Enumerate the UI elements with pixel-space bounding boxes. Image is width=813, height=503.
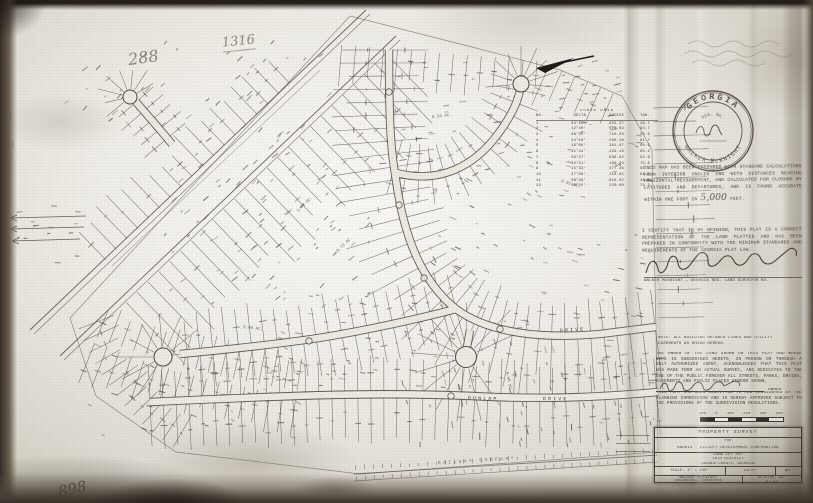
area-label: 0.54 AC. <box>432 114 452 120</box>
seal-signature <box>696 125 722 136</box>
curve-data-table: CURVE DATA NO.DELTARADIUSTAN. 103°12'955… <box>536 108 658 190</box>
area-label: 1.03 AC. <box>297 197 314 214</box>
note-block: NOTE: ALL BUILDING SETBACK LINES AND UTI… <box>658 336 786 347</box>
scan-shadow-bottom-right <box>673 408 813 503</box>
certification-statement: I CERTIFY THAT IN MY OPINION, THIS PLAT … <box>642 227 802 255</box>
ink-wedge-mark <box>536 56 594 73</box>
pencil-note-squiggles <box>684 41 792 66</box>
surveyor-seal: GEORGIA WALKER McKNIGHT REG. No. <box>673 91 753 171</box>
area-label: 0.72 AC. <box>337 237 354 254</box>
approval-statement: THIS PLAT HAS BEEN SUBMITTED TO AND CONS… <box>656 391 802 408</box>
tie-line-arrows <box>10 215 86 244</box>
street-label-drive-south: DRIVE <box>543 396 568 402</box>
accuracy-statement: THIS MAP HAS BEEN PREPARED WITH STANDARD… <box>644 164 802 205</box>
lot-annotation-speckles <box>2 40 715 480</box>
scan-blob-bottom-left <box>96 479 246 503</box>
scan-corner-shadow <box>0 0 46 38</box>
area-label: 0.58 AC. <box>504 372 512 393</box>
seal-state-text: GEORGIA <box>684 92 741 112</box>
curve-table-rows: 103°12'955.3726.7212°40'573.6963.7308°55… <box>536 122 658 190</box>
certification-caption: WALKER McKNIGHT — GEORGIA REG. LAND SURV… <box>644 277 802 283</box>
marginal-notes <box>616 428 650 452</box>
diagonal-corridor <box>30 10 400 360</box>
accuracy-text-suffix: FEET. <box>730 196 745 201</box>
seal-name-text: WALKER McKNIGHT <box>683 143 743 165</box>
curve-table-headers: NO.DELTARADIUSTAN. <box>536 114 658 121</box>
scan-edge-top <box>0 0 813 10</box>
handwritten-1316: 1316 <box>221 32 256 52</box>
scanned-plat-sheet: GEORGIA WALKER McKNIGHT REG. No. DUNLAP … <box>0 0 813 503</box>
area-label: 0.66 AC. <box>243 326 263 332</box>
scan-edge-left <box>0 0 17 503</box>
accuracy-ratio-handwritten: 5,000 <box>700 193 727 203</box>
street-bed <box>136 50 658 402</box>
seal-reg-text: REG. No. <box>701 112 725 121</box>
